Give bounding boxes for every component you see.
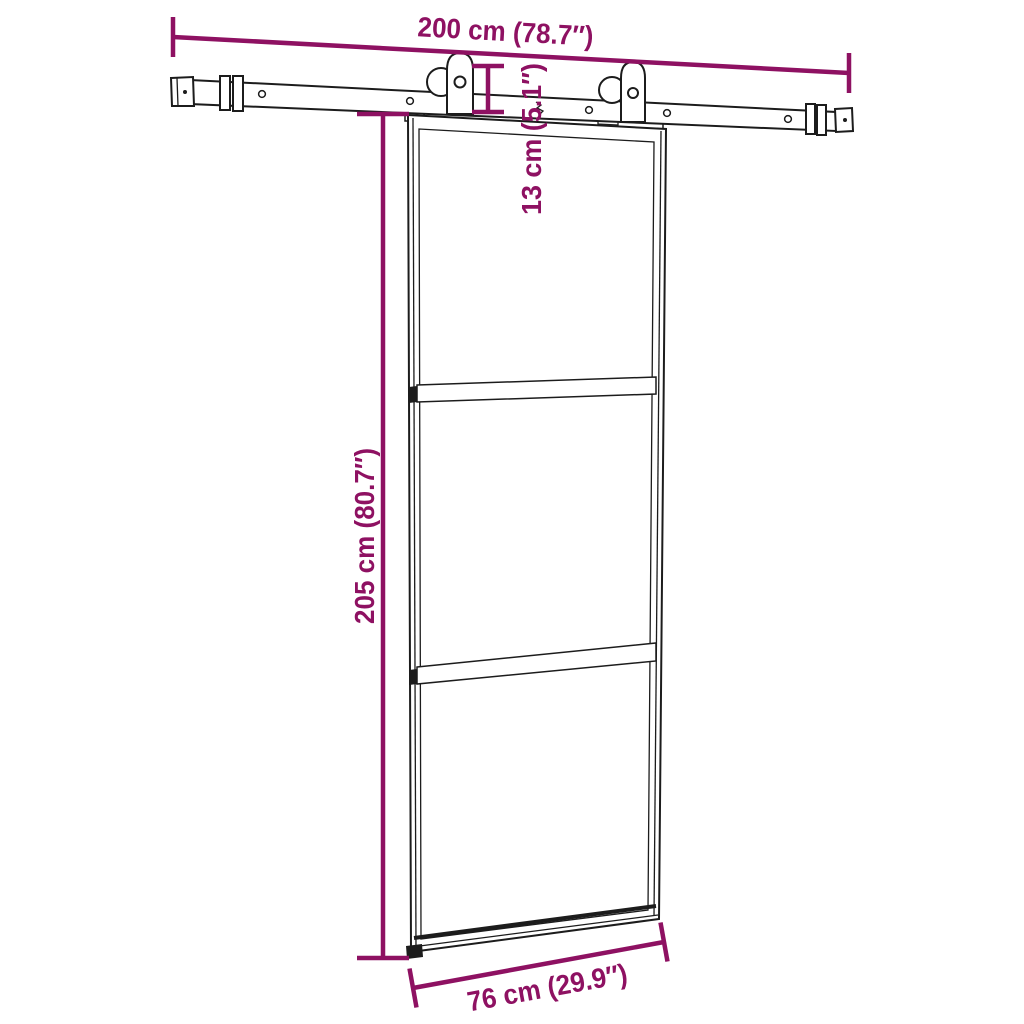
track-length-label: 200 cm (78.7″) (417, 11, 594, 51)
door-height-label: 205 cm (80.7″) (349, 448, 380, 624)
strap-bolt-left (455, 77, 466, 88)
strap-bolt-right (628, 88, 638, 98)
door-outer-frame (408, 115, 666, 952)
hanger-height-label: 13 cm (5.1″) (516, 63, 547, 215)
dimension-track-length: 200 cm (78.7″) (173, 11, 849, 93)
product-dimension-diagram: 200 cm (78.7″) 13 cm (5.1″) 205 cm (80.7… (0, 0, 1024, 1024)
sliding-door-panel (405, 109, 666, 959)
door-width-label: 76 cm (29.9″) (465, 958, 630, 1017)
diagram-canvas: 200 cm (78.7″) 13 cm (5.1″) 205 cm (80.7… (0, 0, 1024, 1024)
dimension-door-height: 205 cm (80.7″) (349, 114, 409, 958)
